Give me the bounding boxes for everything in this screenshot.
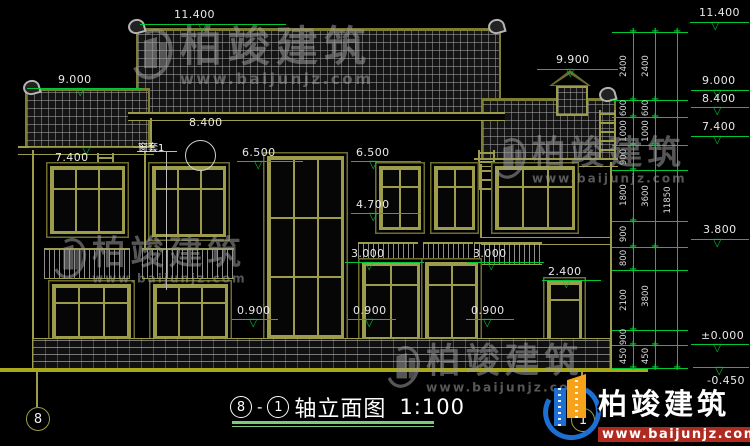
elevation-value: 0.900 (353, 304, 387, 317)
elevation-value: 8.400 (702, 92, 736, 105)
dim-tick-icon: + (651, 95, 659, 105)
dim-value: 2400 (619, 49, 629, 83)
dim-value: 1800 (619, 178, 629, 212)
elevation-value: 7.400 (702, 120, 736, 133)
elevation-triangle-icon: ▽ (713, 106, 721, 116)
title-underline (232, 421, 434, 424)
drawing-title: 8 - 1 轴立面图 1:100 (230, 391, 444, 439)
dim-tick-icon: + (629, 325, 637, 335)
elevation-triangle-icon: ▽ (254, 160, 262, 170)
dim-chain-line (655, 32, 656, 368)
dim-value: 1000 (641, 114, 651, 148)
title-dash: - (257, 398, 262, 416)
elevation-triangle-icon: ▽ (369, 160, 377, 170)
dim-value: 3600 (641, 179, 651, 213)
elevation-value: 9.000 (702, 74, 736, 87)
title-scale: 1:100 (399, 395, 465, 419)
brand-logo: 柏竣建筑 www.baijunjz.com (540, 368, 750, 444)
elevation-triangle-icon: ▽ (76, 87, 84, 97)
dim-value: 900 (619, 140, 629, 174)
elevation-value: ±0.000 (701, 329, 744, 342)
elevation-triangle-icon: ▽ (483, 318, 491, 328)
elevation-value: 6.500 (242, 146, 276, 159)
elevation-line (467, 262, 544, 263)
elevation-triangle-icon: ▽ (249, 318, 257, 328)
brand-name: 柏竣建筑 (598, 381, 750, 423)
elevation-triangle-icon: ▽ (713, 343, 721, 353)
elevation-line (237, 161, 303, 162)
elevation-value: 11.400 (174, 8, 215, 21)
dim-tick-icon: + (651, 27, 659, 37)
elevation-triangle-icon: ▽ (487, 261, 495, 271)
elevation-line (542, 280, 601, 281)
elevation-value: 0.900 (471, 304, 505, 317)
dim-tick-icon: + (629, 140, 637, 150)
elevation-triangle-icon: ▽ (711, 21, 719, 31)
dim-tick-icon: + (629, 216, 637, 226)
elevation-value: 7.400 (55, 151, 89, 164)
dim-chain-line (633, 32, 634, 368)
dim-value: 800 (619, 241, 629, 275)
elevation-value: 6.500 (356, 146, 390, 159)
elevation-value: 2.400 (548, 265, 582, 278)
elevation-triangle-icon: ▽ (566, 68, 574, 78)
elevation-line (537, 69, 618, 70)
elevation-line (351, 213, 421, 214)
elevation-value: 9.900 (556, 53, 590, 66)
elevation-line (351, 161, 421, 162)
elevation-value: 9.000 (58, 73, 92, 86)
elevation-triangle-icon: ▽ (562, 279, 570, 289)
elevation-triangle-icon: ▽ (365, 318, 373, 328)
brand-logo-icon (543, 372, 601, 440)
elevation-value: 4.700 (356, 198, 390, 211)
brand-url: www.baijunjz.com (598, 427, 750, 442)
dim-tick-icon: + (629, 95, 637, 105)
dim-tick-icon: + (629, 112, 637, 122)
elevation-triangle-icon: ▽ (198, 23, 206, 33)
cad-elevation-drawing: 8.400 窗套1 ▽11.400▽9.000▽9.900▽7.400▽6.50… (0, 0, 750, 446)
elevation-value: 3.000 (473, 247, 507, 260)
elevation-triangle-icon: ▽ (365, 261, 373, 271)
elevation-line (29, 147, 133, 148)
elevation-value: 0.900 (237, 304, 271, 317)
title-underline (232, 426, 434, 427)
dim-value: 11850 (663, 183, 673, 217)
dim-tick-icon: + (629, 165, 637, 175)
dim-value: 2400 (641, 49, 651, 83)
elevation-value: 3.800 (703, 223, 737, 236)
elevation-line (140, 24, 286, 25)
elevation-triangle-icon: ▽ (713, 135, 721, 145)
dim-tick-icon: + (651, 112, 659, 122)
dim-tick-icon: + (651, 242, 659, 252)
dim-chain-line (677, 32, 678, 368)
elevation-line (27, 88, 142, 89)
dim-tick-icon: + (651, 140, 659, 150)
dim-tick-icon: + (629, 27, 637, 37)
elevation-value: 3.000 (351, 247, 385, 260)
axis-circle-a: 8 (230, 396, 252, 418)
elevation-triangle-icon: ▽ (713, 238, 721, 248)
dim-value: 3800 (641, 279, 651, 313)
dim-tick-icon: + (629, 242, 637, 252)
dim-tick-icon: + (651, 340, 659, 350)
dim-tick-icon: + (629, 265, 637, 275)
elevation-line (345, 262, 424, 263)
axis-circle-b: 1 (267, 396, 289, 418)
dim-tick-icon: + (629, 340, 637, 350)
elevation-value: 11.400 (699, 6, 740, 19)
elevation-triangle-icon: ▽ (369, 212, 377, 222)
elevation-line (690, 22, 749, 23)
title-text: 轴立面图 (294, 391, 386, 423)
dim-tick-icon: + (673, 27, 681, 37)
dim-value: 2100 (619, 283, 629, 317)
